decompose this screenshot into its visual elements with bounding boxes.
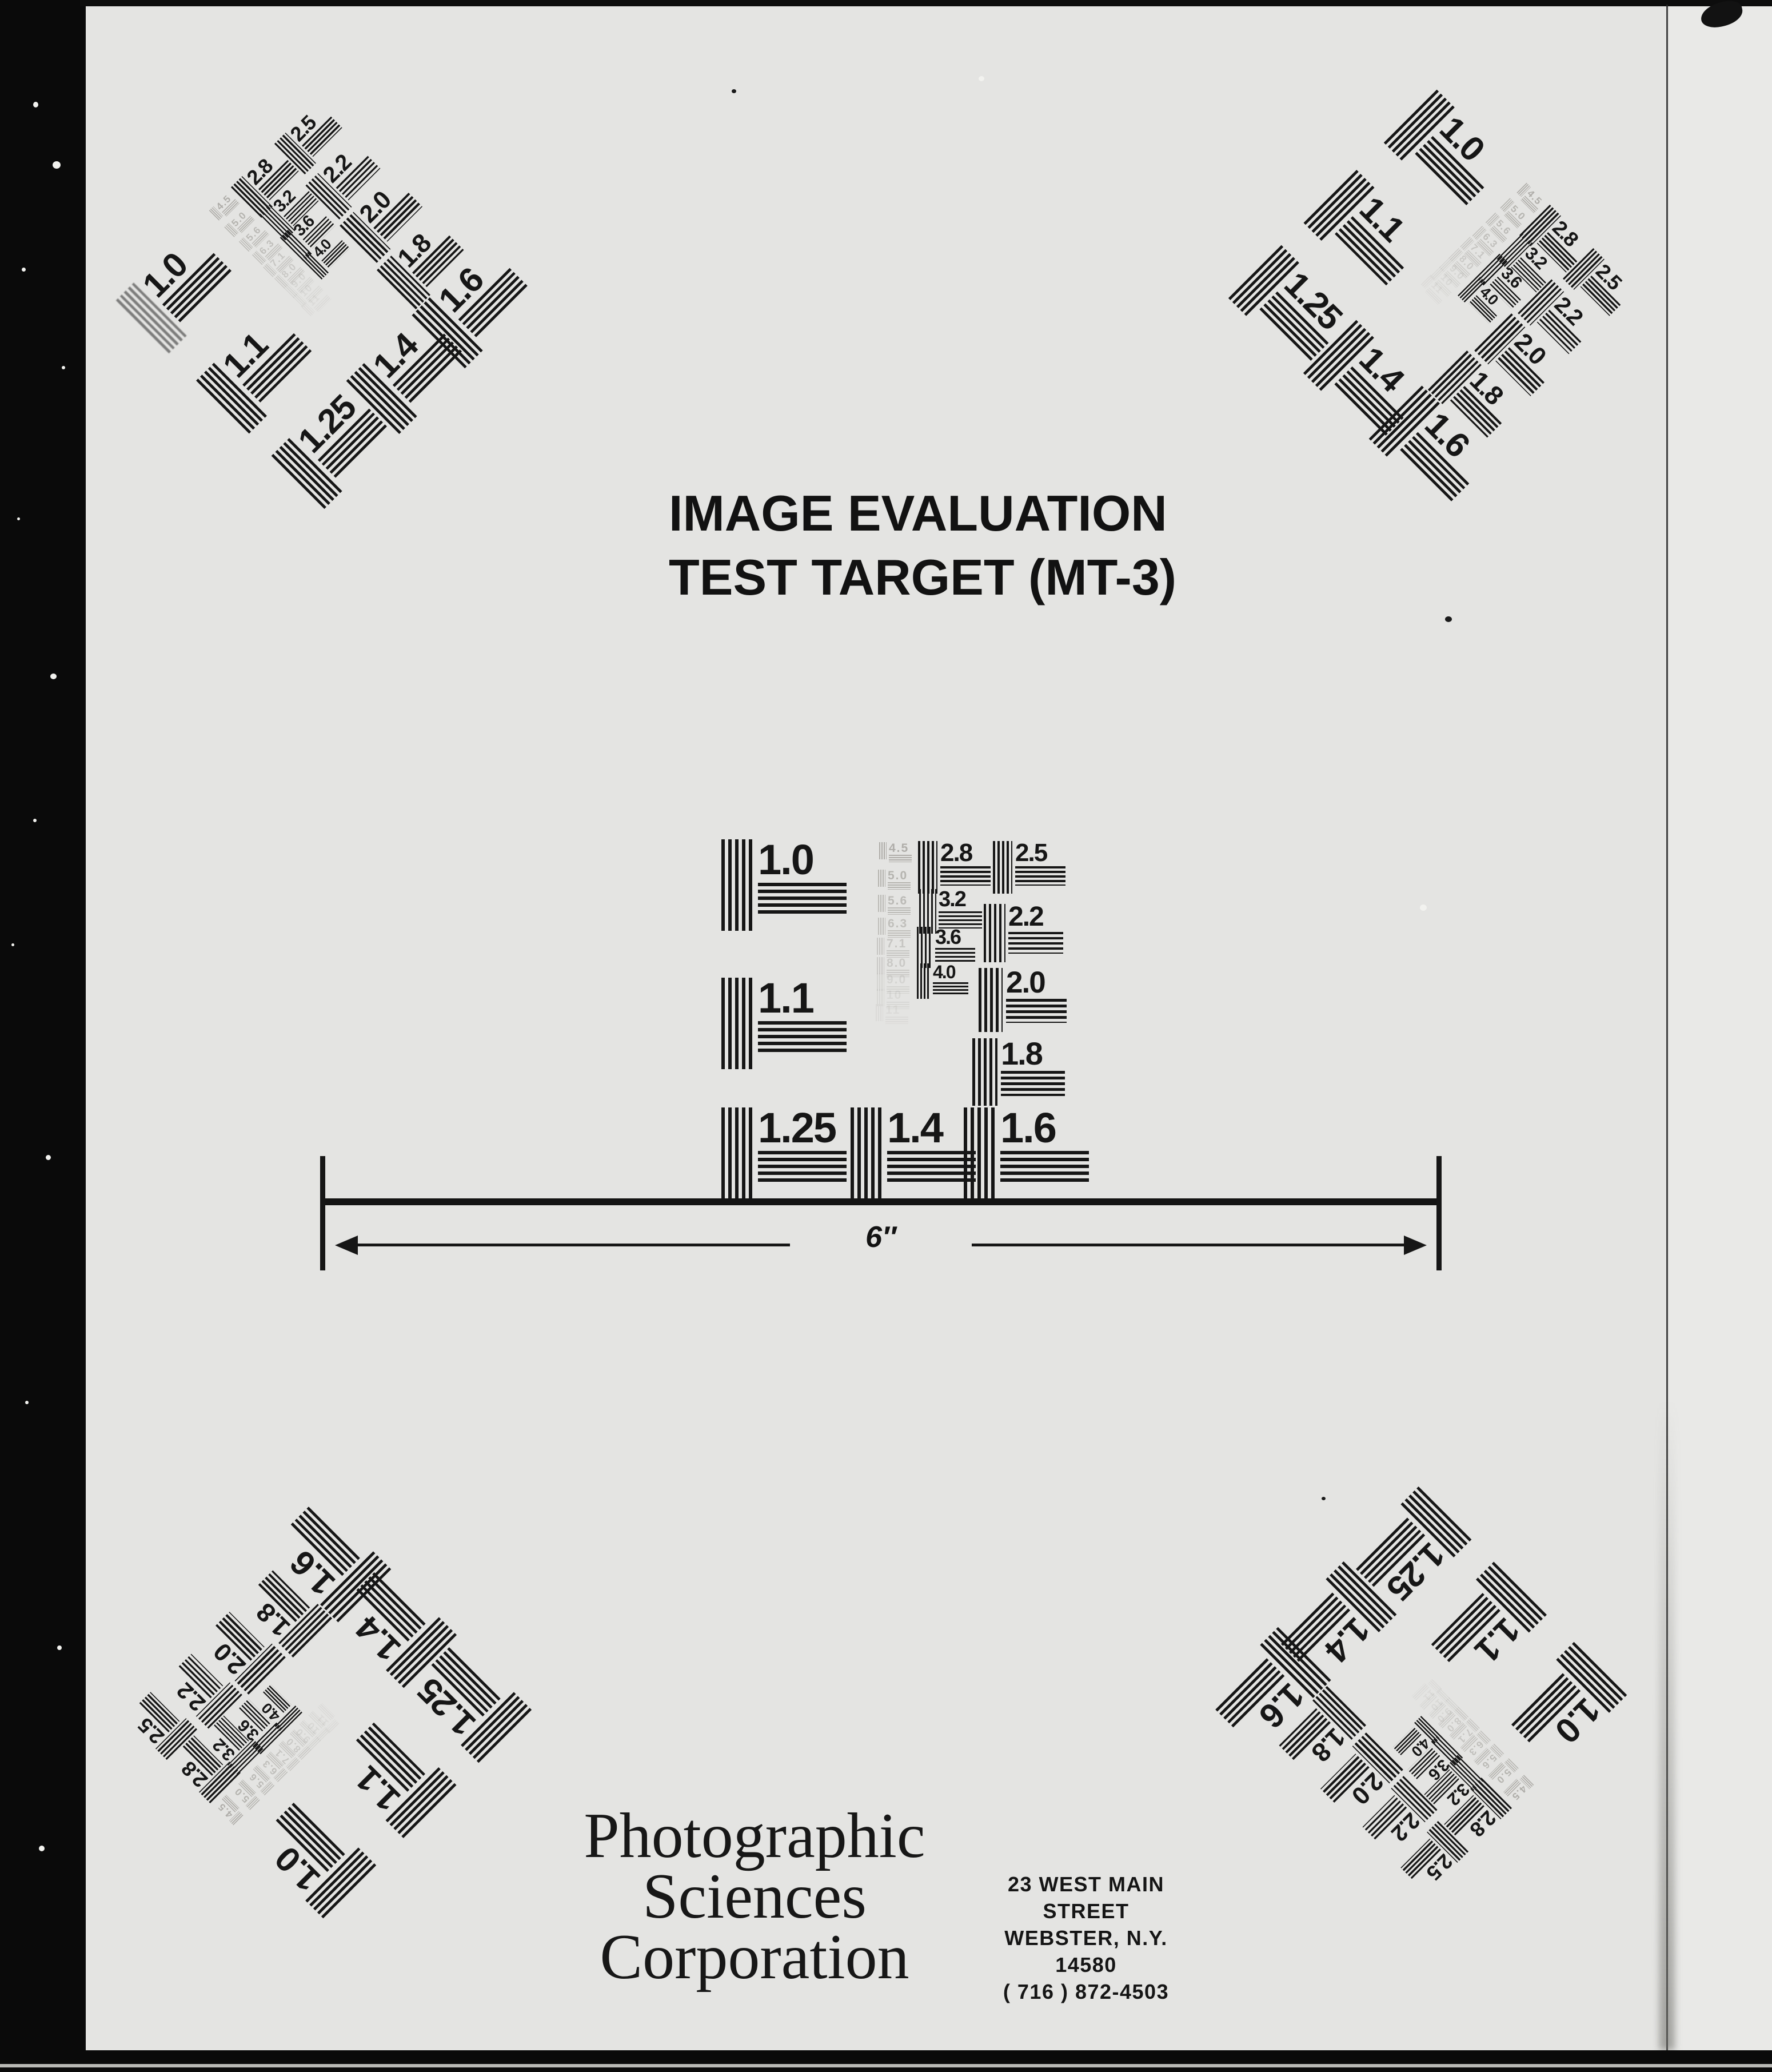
resolution-step-label: 2.0 (1006, 968, 1045, 997)
resolution-step-item-faint: 11 (876, 1004, 908, 1024)
resolution-bars-horizontal (1008, 932, 1063, 954)
address-line3: ( 716 ) 872-4503 (972, 1978, 1200, 2005)
resolution-step-item-faint: 4.5 (879, 842, 912, 862)
resolution-step-item: 1.8 (972, 1038, 1065, 1106)
film-edge-bottom-line (0, 2064, 1772, 2067)
resolution-bars-horizontal (888, 882, 911, 890)
resolution-step-item: 2.0 (979, 968, 1067, 1032)
resolution-step-label: 4.5 (889, 842, 909, 854)
resolution-bars-horizontal (885, 1017, 908, 1024)
dust-speck (17, 517, 20, 520)
resolution-step-label: 9.0 (887, 974, 907, 986)
company-name-line3: Corporation (566, 1927, 943, 1987)
resolution-step-label: 3.2 (939, 889, 965, 910)
resolution-step-item: 4.0 (917, 963, 968, 999)
resolution-bars-vertical (972, 1038, 997, 1106)
company-name: Photographic Sciences Corporation (566, 1806, 943, 1987)
resolution-bars-horizontal (758, 1021, 847, 1054)
ink-speck (1445, 616, 1452, 622)
resolution-step-item: 2.8 (918, 841, 991, 894)
address-line2: WEBSTER, N.Y. 14580 (972, 1924, 1200, 1978)
resolution-step-label: 5.6 (888, 895, 908, 907)
resolution-step-label: 1.1 (758, 978, 813, 1019)
resolution-step-item-faint: 7.1 (877, 938, 909, 958)
scanned-test-target-page: 1.0 1.1 1.25 1.4 1.6 2.8 3.2 3.6 4.0 (0, 0, 1772, 2072)
company-address: 23 WEST MAIN STREET WEBSTER, N.Y. 14580 … (972, 1871, 1200, 2005)
resolution-bars-vertical (877, 938, 884, 955)
dust-speck (57, 1645, 62, 1650)
resolution-step-item-faint: 5.6 (878, 895, 911, 915)
resolution-bars-horizontal (1001, 1071, 1065, 1096)
address-line1: 23 WEST MAIN STREET (972, 1871, 1200, 1924)
company-name-line2: Sciences (566, 1866, 943, 1927)
target-title: IMAGE EVALUATION TEST TARGET (MT-3) (669, 481, 1115, 609)
dust-speck (33, 819, 37, 822)
resolution-step-label: 2.5 (1015, 841, 1047, 865)
resolution-step-item-faint: 5.0 (878, 870, 911, 890)
dust-speck (979, 76, 984, 81)
dust-speck (53, 161, 61, 169)
resolution-step-label: 4.0 (933, 963, 955, 981)
resolution-step-label: 1.25 (758, 1107, 836, 1149)
dust-speck (46, 1155, 51, 1160)
resolution-step-item: 2.5 (993, 841, 1065, 894)
dust-speck (62, 366, 65, 369)
scale-rule-line (325, 1198, 1436, 1205)
dust-speck (25, 1401, 29, 1404)
resolution-step-item-faint: 6.3 (878, 918, 911, 938)
film-edge-bottom (0, 2050, 1772, 2072)
resolution-bars-vertical (878, 895, 885, 912)
resolution-step-item: 2.2 (984, 904, 1063, 962)
resolution-bars-horizontal (888, 907, 911, 915)
resolution-step-item: 1.0 (721, 839, 847, 931)
film-edge-left (0, 0, 86, 2072)
dust-speck (11, 943, 14, 946)
resolution-step-label: 1.0 (758, 839, 813, 880)
page-fold-shadow (1659, 1401, 1675, 2050)
resolution-step-label: 1.4 (887, 1107, 943, 1149)
resolution-step-label: 1.8 (1001, 1038, 1042, 1069)
resolution-step-label: 11 (885, 1004, 900, 1016)
resolution-bars-vertical (721, 839, 753, 931)
film-edge-top (80, 0, 1772, 6)
resolution-step-label: 6.3 (888, 918, 908, 930)
resolution-bars-horizontal (933, 982, 968, 996)
resolution-step-label: 10 (887, 989, 902, 1001)
target-title-line1: IMAGE EVALUATION (669, 481, 1115, 545)
ink-speck (1322, 1497, 1326, 1500)
dust-speck (1420, 904, 1427, 911)
resolution-step-label: 7.1 (887, 938, 907, 950)
paper-right-margin (1669, 0, 1772, 2053)
resolution-bars-vertical (917, 963, 931, 999)
resolution-bars-vertical (878, 870, 885, 887)
resolution-bars-horizontal (1006, 999, 1067, 1023)
resolution-step-item: 1.1 (721, 978, 847, 1069)
resolution-bars-vertical (876, 1004, 883, 1021)
resolution-step-label: 2.8 (940, 841, 972, 865)
resolution-bars-vertical (979, 968, 1003, 1032)
resolution-bars-vertical (878, 918, 885, 935)
resolution-step-label: 8.0 (887, 957, 907, 969)
scale-length-label: 6″ (320, 1220, 1442, 1254)
resolution-bars-horizontal (1015, 866, 1065, 886)
ink-speck (732, 89, 736, 93)
resolution-bars-vertical (877, 957, 884, 974)
resolution-bars-horizontal (758, 883, 847, 916)
resolution-bars-vertical (993, 841, 1012, 894)
six-inch-scale-bar: 6″ (320, 1156, 1442, 1270)
resolution-bars-horizontal (940, 866, 991, 886)
resolution-step-label: 2.2 (1008, 904, 1043, 930)
resolution-step-label: 3.6 (935, 927, 960, 947)
dust-speck (22, 268, 26, 272)
resolution-bars-vertical (918, 841, 937, 894)
company-name-line1: Photographic (566, 1806, 943, 1866)
resolution-bars-vertical (879, 842, 887, 859)
resolution-bars-vertical (877, 974, 884, 991)
resolution-bars-vertical (721, 978, 753, 1069)
resolution-bars-vertical (984, 904, 1005, 962)
dust-speck (33, 102, 38, 107)
resolution-bars-vertical (917, 927, 933, 968)
test-pattern-center: 1.0 1.1 1.25 1.4 1.6 2.8 3.2 3.6 4.0 (712, 822, 1095, 1200)
dust-speck (39, 1846, 45, 1851)
resolution-step-label: 5.0 (888, 870, 908, 882)
dust-speck (50, 674, 57, 679)
resolution-step-label: 1.6 (1000, 1107, 1056, 1149)
resolution-bars-horizontal (889, 855, 912, 862)
target-title-line2: TEST TARGET (MT-3) (669, 545, 1115, 609)
